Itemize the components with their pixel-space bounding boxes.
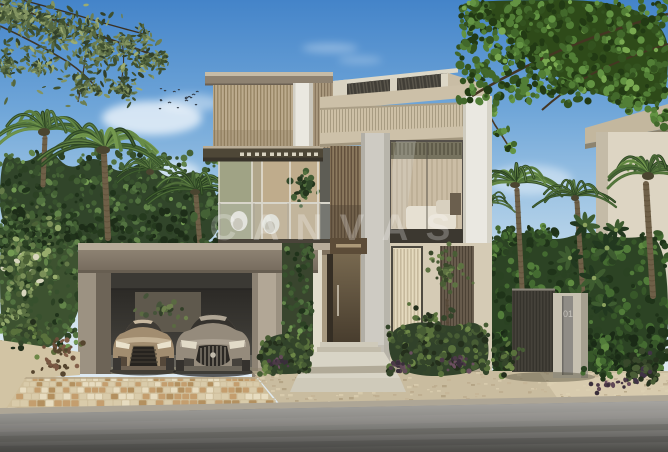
svg-text:01: 01 [563,309,573,319]
